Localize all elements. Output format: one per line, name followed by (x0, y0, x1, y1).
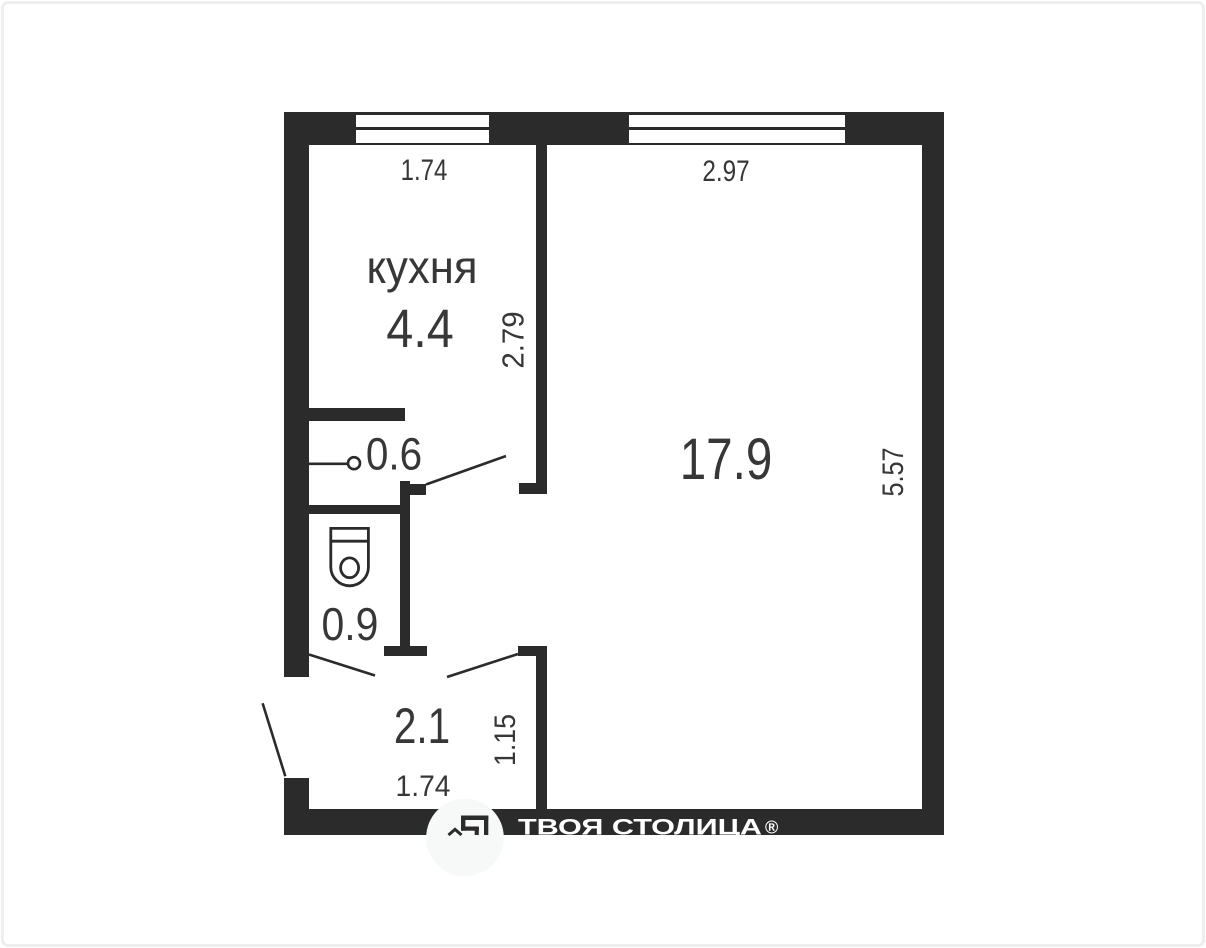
svg-text:ТВОЯ СТОЛИЦА: ТВОЯ СТОЛИЦА (518, 815, 762, 840)
svg-text:®: ® (765, 818, 778, 838)
